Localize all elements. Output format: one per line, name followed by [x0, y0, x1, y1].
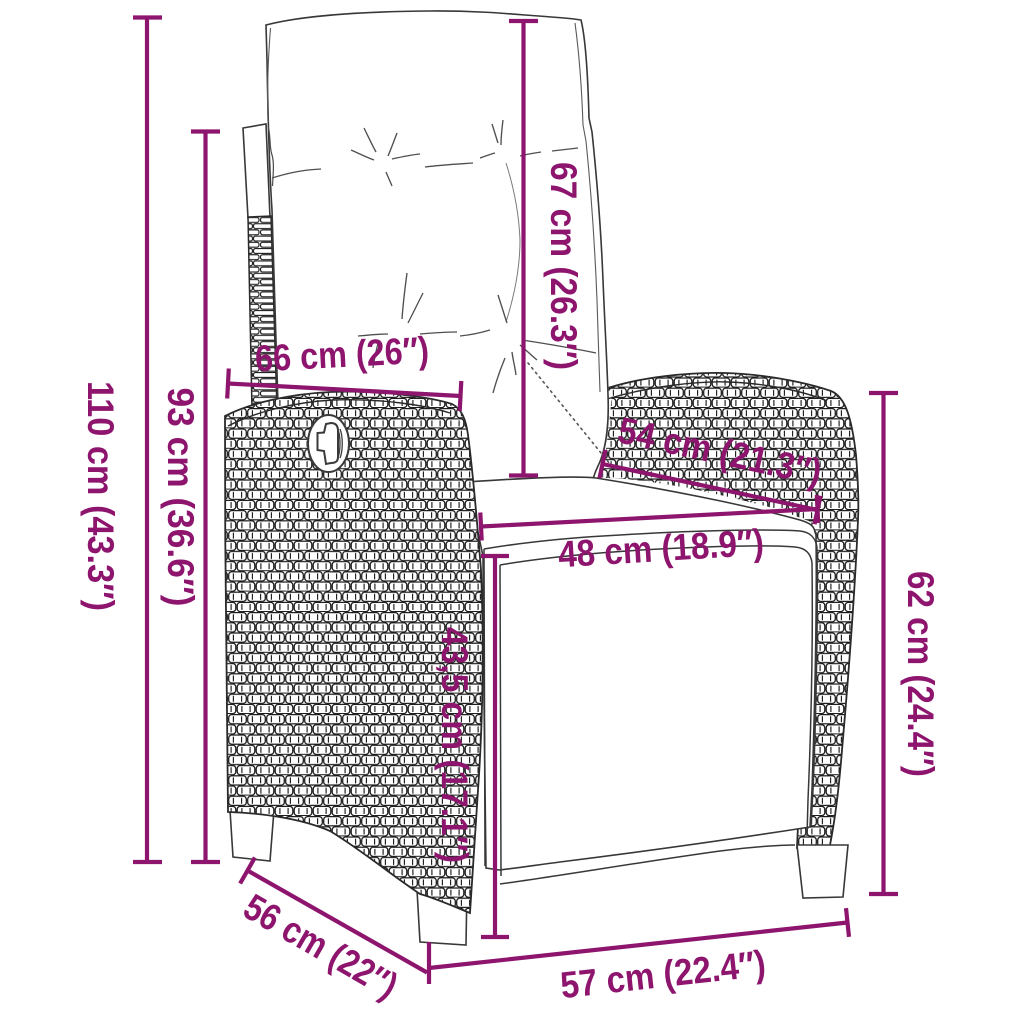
svg-text:43,5 cm (17.1″): 43,5 cm (17.1″)	[434, 627, 476, 863]
svg-text:110 cm (43.3″): 110 cm (43.3″)	[80, 381, 122, 611]
svg-text:62 cm (24.4″): 62 cm (24.4″)	[900, 571, 942, 777]
svg-text:93 cm (36.6″): 93 cm (36.6″)	[160, 388, 202, 607]
svg-text:67 cm (26.3″): 67 cm (26.3″)	[543, 162, 585, 370]
